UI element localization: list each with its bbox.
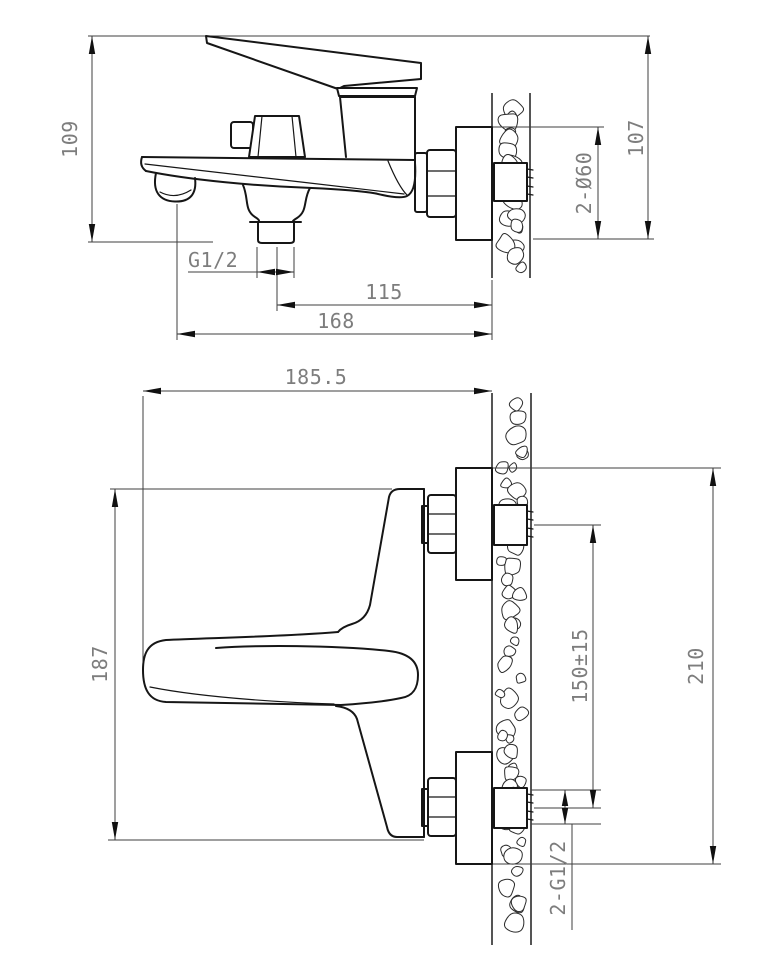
dim-label-185-5: 185.5 xyxy=(285,365,348,389)
adapter-ring xyxy=(415,153,427,212)
dim-label-210: 210 xyxy=(684,647,708,685)
inwall-fitting-top xyxy=(494,505,527,545)
plan-view-dimensions xyxy=(108,388,721,930)
diverter-button xyxy=(231,122,253,148)
dimension-109 xyxy=(89,36,95,242)
dim-label-115: 115 xyxy=(365,280,403,304)
pebble xyxy=(505,558,521,575)
pebble xyxy=(501,573,512,586)
pebble xyxy=(506,426,526,445)
outlet-tail xyxy=(258,222,294,243)
pebble xyxy=(505,617,518,634)
wall-rubble-plan xyxy=(495,398,528,932)
pebble xyxy=(498,879,514,897)
dim-label-107: 107 xyxy=(624,119,648,157)
dim-label-168: 168 xyxy=(317,309,355,333)
dim-label-109: 109 xyxy=(58,120,82,158)
pebble xyxy=(510,411,526,425)
hex-nut-top xyxy=(428,495,456,553)
pebble xyxy=(507,248,523,265)
diverter-knob xyxy=(249,116,305,157)
dim-label-inlet-thread: 2-G1/2 xyxy=(546,840,570,915)
pebble xyxy=(516,673,526,683)
side-view xyxy=(141,36,533,243)
cartridge-ring xyxy=(337,88,417,96)
dim-label-flange-diameter: 2-Ø60 xyxy=(572,152,596,215)
wall-section-plan xyxy=(492,393,531,945)
technical-drawing: 109 107 2-Ø60 G1/2 115 168 185.5 187 150… xyxy=(0,0,777,969)
pebble xyxy=(498,656,513,673)
dimension-inlet-thread xyxy=(562,790,568,824)
plan-body xyxy=(338,489,424,632)
pebble xyxy=(495,689,505,697)
pebble xyxy=(517,837,526,846)
pebble xyxy=(504,848,523,864)
pebble xyxy=(515,707,529,721)
escutcheon-top xyxy=(456,468,492,580)
technical-drawing-page: 109 107 2-Ø60 G1/2 115 168 185.5 187 150… xyxy=(0,0,777,969)
body xyxy=(340,97,415,163)
hex-nut-bottom xyxy=(428,778,456,836)
dim-label-inlet-spacing: 150±15 xyxy=(568,628,592,703)
pebble xyxy=(509,398,522,411)
pebble xyxy=(511,219,523,232)
inwall-fitting-bottom xyxy=(494,788,527,828)
inwall-fitting xyxy=(494,163,527,201)
pebble xyxy=(511,867,523,877)
handle xyxy=(206,36,421,89)
pebble xyxy=(510,637,519,646)
plan-view xyxy=(143,468,533,864)
spout-support xyxy=(243,185,259,222)
pebble xyxy=(497,557,507,566)
escutcheon-bottom xyxy=(456,752,492,864)
pebble xyxy=(504,913,523,932)
escutcheon xyxy=(456,127,492,240)
hex-nut xyxy=(427,150,456,217)
body-bottom-wedge xyxy=(376,163,415,197)
dimension-187 xyxy=(112,489,118,840)
plan-handle xyxy=(143,632,418,705)
dim-label-outlet-thread: G1/2 xyxy=(188,248,238,272)
dim-label-187: 187 xyxy=(88,645,112,683)
dimension-210 xyxy=(710,468,716,864)
pebble xyxy=(504,646,516,656)
